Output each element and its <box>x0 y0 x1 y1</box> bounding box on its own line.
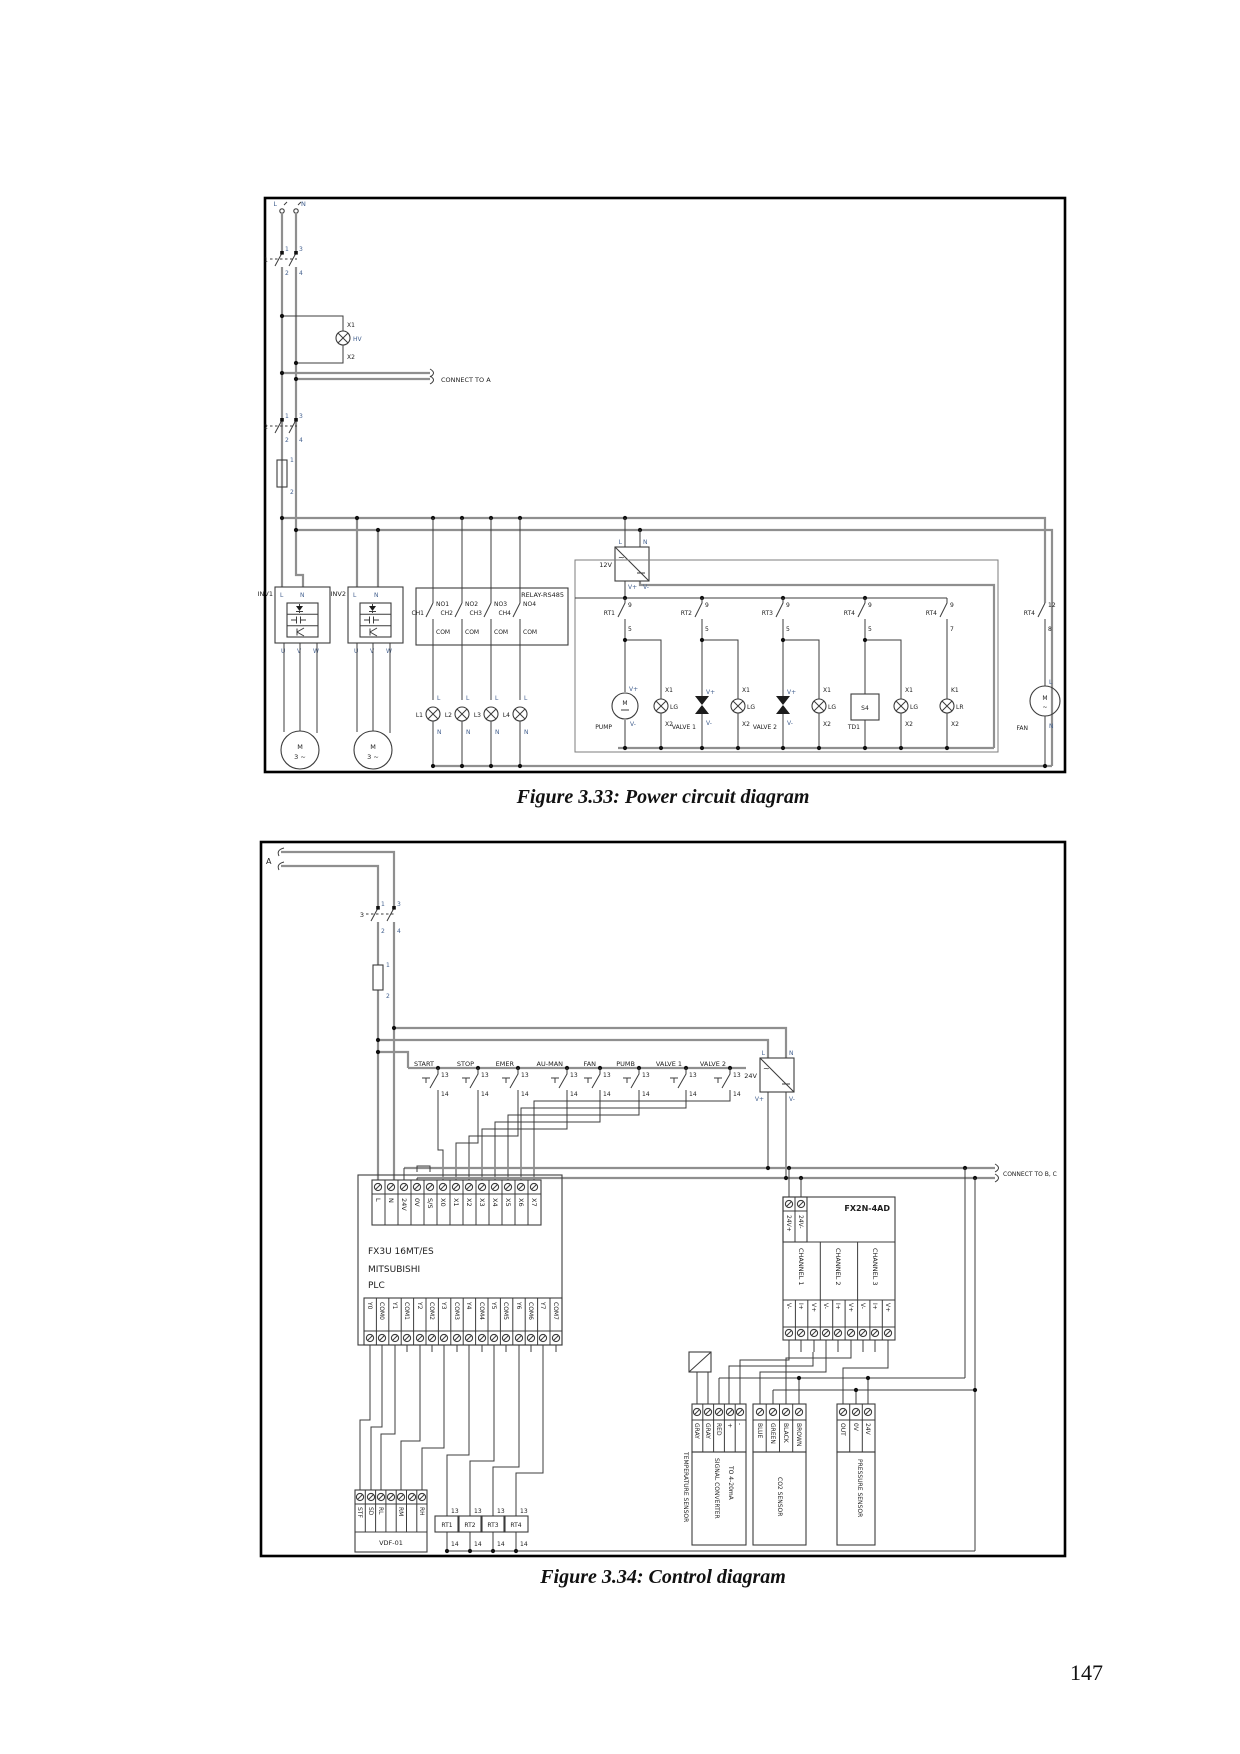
relay-contact-1: NO1 CH1 COM <box>411 601 450 636</box>
branch-valve1: 9 RT2 5 V+ V- VALVE 1 X1 LG X2 <box>672 598 755 750</box>
vdf-01: STF SD RL RM RH VDF-01 <box>355 1490 427 1552</box>
branch-pump: 9 RT1 5 V+ M V- PUMP X1 LG X2 <box>595 598 678 750</box>
pin: 14 <box>570 1091 578 1098</box>
indicator-lamps: L L1 N L L2 N L L3 N L L4 N <box>416 695 529 768</box>
coil-label: RT4 <box>510 1522 521 1529</box>
pin: I+ <box>797 1303 804 1310</box>
pin: 13 <box>451 1508 459 1515</box>
pin: 9 <box>868 602 872 609</box>
pump-label: PUMP <box>595 724 612 731</box>
pin: X2 <box>905 721 913 728</box>
pin: N <box>789 1050 794 1057</box>
pin: RH <box>418 1507 425 1516</box>
pin: 13 <box>603 1072 611 1079</box>
ac-symbol: ~ <box>618 553 625 562</box>
inverter-1: INV1 L N U V W M 3 ~ <box>258 587 330 769</box>
lamp-label: LG <box>747 704 755 711</box>
branch-valve2: 9 RT3 5 V+ V- VALVE 2 X1 LG X2 <box>753 598 836 750</box>
pin: 14 <box>451 1541 459 1548</box>
pin: V+ <box>810 1303 817 1312</box>
pin: 4 <box>299 270 303 277</box>
pin: 9 <box>786 602 790 609</box>
power-wires <box>282 213 1052 766</box>
rt-coils: 13 RT1 14 13 RT2 14 13 RT3 14 13 RT4 <box>435 1508 528 1553</box>
l-terminal-label: L <box>273 200 277 208</box>
inverter-2: INV2 L N U V W M 3 ~ <box>331 587 403 769</box>
pin: L <box>374 1198 382 1202</box>
pin: 8 <box>1048 626 1052 633</box>
rt-branch-zone: 9 RT1 5 V+ M V- PUMP X1 LG X2 9 RT2 5 V+ <box>575 560 998 752</box>
p: W <box>386 648 392 655</box>
pin: COM6 <box>527 1302 534 1320</box>
ac-symbol: ~ <box>763 1064 770 1073</box>
pin: N <box>495 729 500 736</box>
button-label: VALVE 2 <box>700 1060 726 1068</box>
connect-bc-label: CONNECT TO B, C <box>1003 1171 1057 1178</box>
pin: COM7 <box>552 1302 559 1320</box>
channel-label: CHANNEL 1 <box>797 1248 805 1286</box>
inv1-label: INV1 <box>258 590 273 598</box>
pin: COM3 <box>453 1302 460 1320</box>
pin: S/S <box>426 1198 434 1208</box>
pin: COM <box>494 629 508 636</box>
pin: OUT <box>839 1423 846 1436</box>
pin: SD <box>367 1507 374 1516</box>
pin: STF <box>356 1507 363 1518</box>
pin: X5 <box>504 1198 512 1207</box>
pin: GRAY <box>693 1423 700 1439</box>
control-diagram: A 3 1 2 3 4 1 2 START 13 14 STOP <box>258 838 1072 1562</box>
pin: NO3 <box>494 601 507 608</box>
valve1-label: VALVE 1 <box>672 724 696 731</box>
pin: X1 <box>823 687 831 694</box>
pin: K1 <box>951 687 959 694</box>
pin: 4 <box>397 928 401 935</box>
pin: N <box>300 592 305 599</box>
pin: CH3 <box>469 610 482 617</box>
pin: V- <box>789 1096 795 1103</box>
pin: Y7 <box>539 1301 546 1310</box>
button-label: EMER <box>496 1060 515 1068</box>
pin: 14 <box>689 1091 697 1098</box>
lamp-label: LR <box>956 704 964 711</box>
pin: NO2 <box>465 601 478 608</box>
pin: I+ <box>834 1303 841 1310</box>
figure1-panel: L N 1 1 2 3 4 X1 HV X2 CONNECT TO A 2 1 … <box>258 192 1072 782</box>
psu-24v: ~ 24V L N V+ V- <box>744 1050 795 1178</box>
channel-label: CHANNEL 3 <box>871 1248 879 1286</box>
pin: L <box>495 695 499 702</box>
pin: 5 <box>786 626 790 633</box>
coil-label: RT1 <box>441 1522 452 1529</box>
lamp-l4: L L4 N <box>503 695 529 768</box>
pin: X2 <box>742 721 750 728</box>
device-label: S4 <box>861 705 869 712</box>
pin: V- <box>706 720 712 727</box>
channel-label: CHANNEL 2 <box>834 1248 842 1286</box>
pin: + <box>726 1423 733 1428</box>
co2-sensor: BLUE GREEN BLACK BROWN CO2 SENSOR <box>753 1404 806 1545</box>
pin: X7 <box>530 1198 538 1207</box>
pin: 5 <box>868 626 872 633</box>
pin: 3 <box>299 413 303 420</box>
figure2-panel: A 3 1 2 3 4 1 2 START 13 14 STOP <box>258 838 1072 1566</box>
pin: V- <box>822 1303 829 1309</box>
pin: RL <box>377 1507 384 1515</box>
pin: X2 <box>465 1198 473 1207</box>
pin: RM <box>397 1507 404 1516</box>
pin: COM <box>436 629 450 636</box>
pin: Y6 <box>515 1301 522 1310</box>
pin: L <box>524 695 528 702</box>
breaker-2: 2 1 2 3 4 <box>264 413 303 444</box>
pilot-lamp-label: HV <box>353 336 363 343</box>
pin: 14 <box>733 1091 741 1098</box>
pin: 13 <box>689 1072 697 1079</box>
pin: 2 <box>381 928 385 935</box>
plc-top-terminals: L N 24V 0V S/S X0 X1 X2 X3 X4 X5 X6 X7 <box>374 1183 538 1211</box>
pin: N <box>374 592 379 599</box>
pin: 14 <box>497 1541 505 1548</box>
breaker3-name: 3 <box>360 911 364 919</box>
pin: 4 <box>299 437 303 444</box>
pin: 0V <box>852 1423 859 1432</box>
fx2n-title: FX2N-4AD <box>844 1204 890 1213</box>
lamp-name: L1 <box>416 712 423 719</box>
fuse-2: 1 2 <box>373 962 390 1000</box>
pin: X2 <box>823 721 831 728</box>
button-au-man: AU-MAN 13 14 <box>482 1060 578 1180</box>
lamp-icon <box>940 699 954 713</box>
rt-contact-label: RT3 <box>762 610 773 617</box>
motor-label: M <box>370 743 376 751</box>
figure1-frame <box>265 198 1065 772</box>
pin: L <box>762 1050 766 1057</box>
pin: 1 <box>381 901 385 908</box>
pin: V+ <box>755 1096 764 1103</box>
pin: 13 <box>642 1072 650 1079</box>
pin: 2 <box>285 270 289 277</box>
figure1-caption: Figure 3.33: Power circuit diagram <box>43 786 1240 809</box>
pin: N <box>524 729 529 736</box>
button-start: START 13 14 <box>414 1060 449 1180</box>
plc-brand: MITSUBISHI <box>368 1265 420 1275</box>
pin: 14 <box>481 1091 489 1098</box>
valve2-label: VALVE 2 <box>753 724 777 731</box>
co2-sensor-label: CO2 SENSOR <box>776 1477 783 1516</box>
pin: 14 <box>642 1091 650 1098</box>
plc-fx3u: L N 24V 0V S/S X0 X1 X2 X3 X4 X5 X6 X7 F… <box>358 1166 562 1345</box>
fan-branch: 12 RT4 8 L M ~ N FAN <box>1017 602 1061 768</box>
lamp-icon <box>731 699 745 713</box>
lamp-name: L2 <box>445 712 452 719</box>
pin: V- <box>785 1303 792 1309</box>
button-label: VALVE 1 <box>656 1060 682 1068</box>
pin: V+ <box>628 584 637 591</box>
pin: 9 <box>628 602 632 609</box>
pin: 13 <box>521 1072 529 1079</box>
pin: 24V+ <box>785 1215 792 1232</box>
branch-red-lamp: 9 RT4 7 K1 LR X2 <box>926 598 964 750</box>
pin: 13 <box>733 1072 741 1079</box>
rt-contact-label: RT1 <box>604 610 615 617</box>
pin: 9 <box>950 602 954 609</box>
lamp-name: L4 <box>503 712 510 719</box>
lamp-l1: L L1 N <box>416 695 442 768</box>
pin: 3 <box>299 246 303 253</box>
rt-contact-label: RT4 <box>844 610 855 617</box>
figure2-caption: Figure 3.34: Control diagram <box>43 1566 1240 1589</box>
pin: - <box>736 1423 743 1425</box>
lamp-label: LG <box>910 704 918 711</box>
pin: 2 <box>386 993 390 1000</box>
pin: N <box>437 729 442 736</box>
pin: N <box>466 729 471 736</box>
pin: 13 <box>497 1508 505 1515</box>
pin: COM0 <box>378 1302 385 1320</box>
pin: V+ <box>787 689 796 696</box>
pin: GREEN <box>769 1423 776 1444</box>
pin: 24V <box>400 1198 408 1211</box>
branch-td1: 9 RT4 5 S4 TD1 X1 LG X2 <box>844 598 919 750</box>
pin: 2 <box>285 437 289 444</box>
lamp-icon <box>654 699 668 713</box>
pin: BLACK <box>782 1423 789 1444</box>
converter-label-2: TO 4-20mA <box>727 1465 734 1501</box>
td1-label: TD1 <box>847 724 860 731</box>
lamp-icon <box>484 707 498 721</box>
pin: 9 <box>705 602 709 609</box>
pilot-lamp-branch: X1 HV X2 <box>280 314 363 365</box>
converter-label-1: SIGNAL CONVERTER <box>713 1458 720 1519</box>
lamp-label: LG <box>670 704 678 711</box>
pin: N <box>1049 723 1054 730</box>
document-page: { "figure1": { "caption": "Figure 3.33: … <box>0 0 1240 1754</box>
connect-a-label: CONNECT TO A <box>441 376 491 384</box>
pin: X1 <box>905 687 913 694</box>
vdf-title: VDF-01 <box>379 1539 403 1547</box>
pin: Y2 <box>416 1301 423 1310</box>
lamp-l3: L L3 N <box>474 695 500 768</box>
motor-label: M <box>297 743 303 751</box>
relay-title: RELAY-RS485 <box>521 591 564 599</box>
button-pumb: PUMB 13 14 <box>508 1060 650 1180</box>
pin: CH4 <box>498 610 511 617</box>
fan-label: FAN <box>1017 725 1029 732</box>
page-number: 147 <box>1070 1660 1103 1686</box>
pin: X1 <box>665 687 673 694</box>
pin: L <box>280 592 284 599</box>
pin: 24V <box>864 1423 871 1436</box>
pin: CH1 <box>411 610 424 617</box>
coil-label: RT3 <box>487 1522 498 1529</box>
fuse-1: 1 2 <box>277 457 294 496</box>
pin: 1 <box>290 457 294 464</box>
lamp-icon <box>455 707 469 721</box>
pin: Y0 <box>366 1301 373 1310</box>
pilot-lamp-icon <box>336 331 350 345</box>
valve-icon <box>776 696 790 714</box>
pin: 2 <box>290 489 294 496</box>
pin: L <box>466 695 470 702</box>
fx2n-4ad: FX2N-4AD 24V+ 24V- CHANNEL 1 CHANNEL 2 C… <box>783 1168 895 1352</box>
pin: L <box>437 695 441 702</box>
inv2-label: INV2 <box>331 590 346 598</box>
pin: V- <box>643 584 649 591</box>
pin: 13 <box>441 1072 449 1079</box>
pin: X0 <box>439 1198 447 1207</box>
n-terminal-label: N <box>301 200 306 208</box>
connect-a: CONNECT TO A <box>280 369 491 384</box>
psu-label: 12V <box>599 561 612 569</box>
pin: X1 <box>347 322 355 329</box>
button-stop: STOP 13 14 <box>456 1060 489 1180</box>
pin: V- <box>630 721 636 728</box>
pin: NO1 <box>436 601 449 608</box>
lamp-l2: L L2 N <box>445 695 471 768</box>
mains-terminals: L N <box>273 200 306 213</box>
pin: 14 <box>441 1091 449 1098</box>
button-label: FAN <box>584 1060 597 1068</box>
pin: RED <box>715 1423 722 1436</box>
button-label: AU-MAN <box>537 1060 564 1068</box>
rt-contact-label: RT4 <box>1024 610 1035 617</box>
pin: L <box>619 539 623 546</box>
lamp-name: L3 <box>474 712 481 719</box>
pin: Y1 <box>391 1301 398 1310</box>
pin: X2 <box>347 354 355 361</box>
pin: BROWN <box>795 1423 802 1446</box>
psu-label: 24V <box>744 1072 757 1080</box>
pin: V- <box>787 720 793 727</box>
rt-contact-label: RT2 <box>681 610 692 617</box>
pin: COM2 <box>428 1302 435 1320</box>
pressure-sensor: OUT 0V 24V PRESSURE SENSOR <box>837 1404 875 1545</box>
pin: X1 <box>452 1198 460 1207</box>
breaker-1: 1 1 2 3 4 <box>264 246 303 277</box>
pin: NO4 <box>523 601 536 608</box>
pin: U <box>281 648 285 655</box>
pin: X2 <box>951 721 959 728</box>
pin: Y3 <box>440 1301 447 1310</box>
connector-a-label: A <box>266 857 272 866</box>
plc-type: PLC <box>368 1281 385 1291</box>
pressure-sensor-label: PRESSURE SENSOR <box>856 1459 863 1517</box>
pin: Y4 <box>465 1301 472 1310</box>
pin: COM <box>523 629 537 636</box>
lamp-icon <box>894 699 908 713</box>
motor-label: M <box>1042 695 1047 702</box>
temperature-sensor: GRAY GRAY RED + - SIGNAL CONVERTER TO 4-… <box>682 1352 746 1545</box>
pin: 14 <box>603 1091 611 1098</box>
pin: 12 <box>1048 602 1056 609</box>
pin: 1 <box>386 962 390 969</box>
pin: 1 <box>285 413 289 420</box>
plc-model: FX3U 16MT/ES <box>368 1247 434 1257</box>
rt-contact-label: RT4 <box>926 610 937 617</box>
lamp-icon <box>513 707 527 721</box>
pin: X6 <box>517 1198 525 1207</box>
pin: 0V <box>413 1198 421 1207</box>
motor-phase: 3 ~ <box>294 753 306 761</box>
valve-icon <box>695 696 709 714</box>
button-label: PUMB <box>616 1060 635 1068</box>
pin: V- <box>859 1303 866 1309</box>
pin: X1 <box>742 687 750 694</box>
pin: 14 <box>521 1091 529 1098</box>
lamp-icon <box>812 699 826 713</box>
fx2n-pin-labels: V- I+ V+ V- I+ V+ V- I+ V+ <box>785 1303 891 1312</box>
pin: 3 <box>397 901 401 908</box>
pin: 13 <box>474 1508 482 1515</box>
pin: GRAY <box>704 1423 711 1439</box>
pin: BLUE <box>756 1423 763 1439</box>
temp-sensor-label: TEMPERATURE SENSOR <box>682 1451 689 1522</box>
pin: 13 <box>481 1072 489 1079</box>
pin: 7 <box>950 626 954 633</box>
lamp-icon <box>426 707 440 721</box>
pin: X3 <box>478 1198 486 1207</box>
pin: Y5 <box>490 1301 497 1310</box>
pin: I+ <box>871 1303 878 1310</box>
pin: 5 <box>628 626 632 633</box>
coil-label: RT2 <box>464 1522 475 1529</box>
breaker2-name: 2 <box>264 423 268 431</box>
push-buttons: START 13 14 STOP 13 14 EMER 13 14 AU-MAN… <box>414 1060 741 1180</box>
pin: COM4 <box>478 1302 485 1320</box>
pin: V+ <box>884 1303 891 1312</box>
motor-phase: ~ <box>1042 704 1047 711</box>
pin: V+ <box>847 1303 854 1312</box>
pin: N <box>387 1198 395 1203</box>
breaker1-name: 1 <box>264 256 268 264</box>
pin: 14 <box>520 1541 528 1548</box>
power-circuit-diagram: L N 1 1 2 3 4 X1 HV X2 CONNECT TO A 2 1 … <box>258 192 1072 778</box>
pin: V+ <box>706 689 715 696</box>
pin: 14 <box>474 1541 482 1548</box>
pin: W <box>313 648 319 655</box>
button-label: STOP <box>457 1060 474 1068</box>
pin: N <box>643 539 648 546</box>
pin: U <box>354 648 358 655</box>
pin: 13 <box>570 1072 578 1079</box>
pin: 5 <box>705 626 709 633</box>
pin: X4 <box>491 1198 499 1207</box>
pin: COM1 <box>403 1302 410 1320</box>
pin: L <box>353 592 357 599</box>
pin: 13 <box>520 1508 528 1515</box>
pin: COM5 <box>502 1302 509 1320</box>
pin: 1 <box>285 246 289 253</box>
dc-buses: CONNECT TO B, C <box>404 1164 1057 1182</box>
motor-label: M <box>622 700 627 707</box>
motor-phase: 3 ~ <box>367 753 379 761</box>
lamp-label: LG <box>828 704 836 711</box>
pin: 24V- <box>797 1215 804 1229</box>
relay-rs485: RELAY-RS485 NO1 CH1 COM NO2 CH2 COM NO3 … <box>411 518 568 700</box>
button-label: START <box>414 1060 434 1068</box>
pin: CH2 <box>440 610 453 617</box>
pin: COM <box>465 629 479 636</box>
pin: V+ <box>629 686 638 693</box>
